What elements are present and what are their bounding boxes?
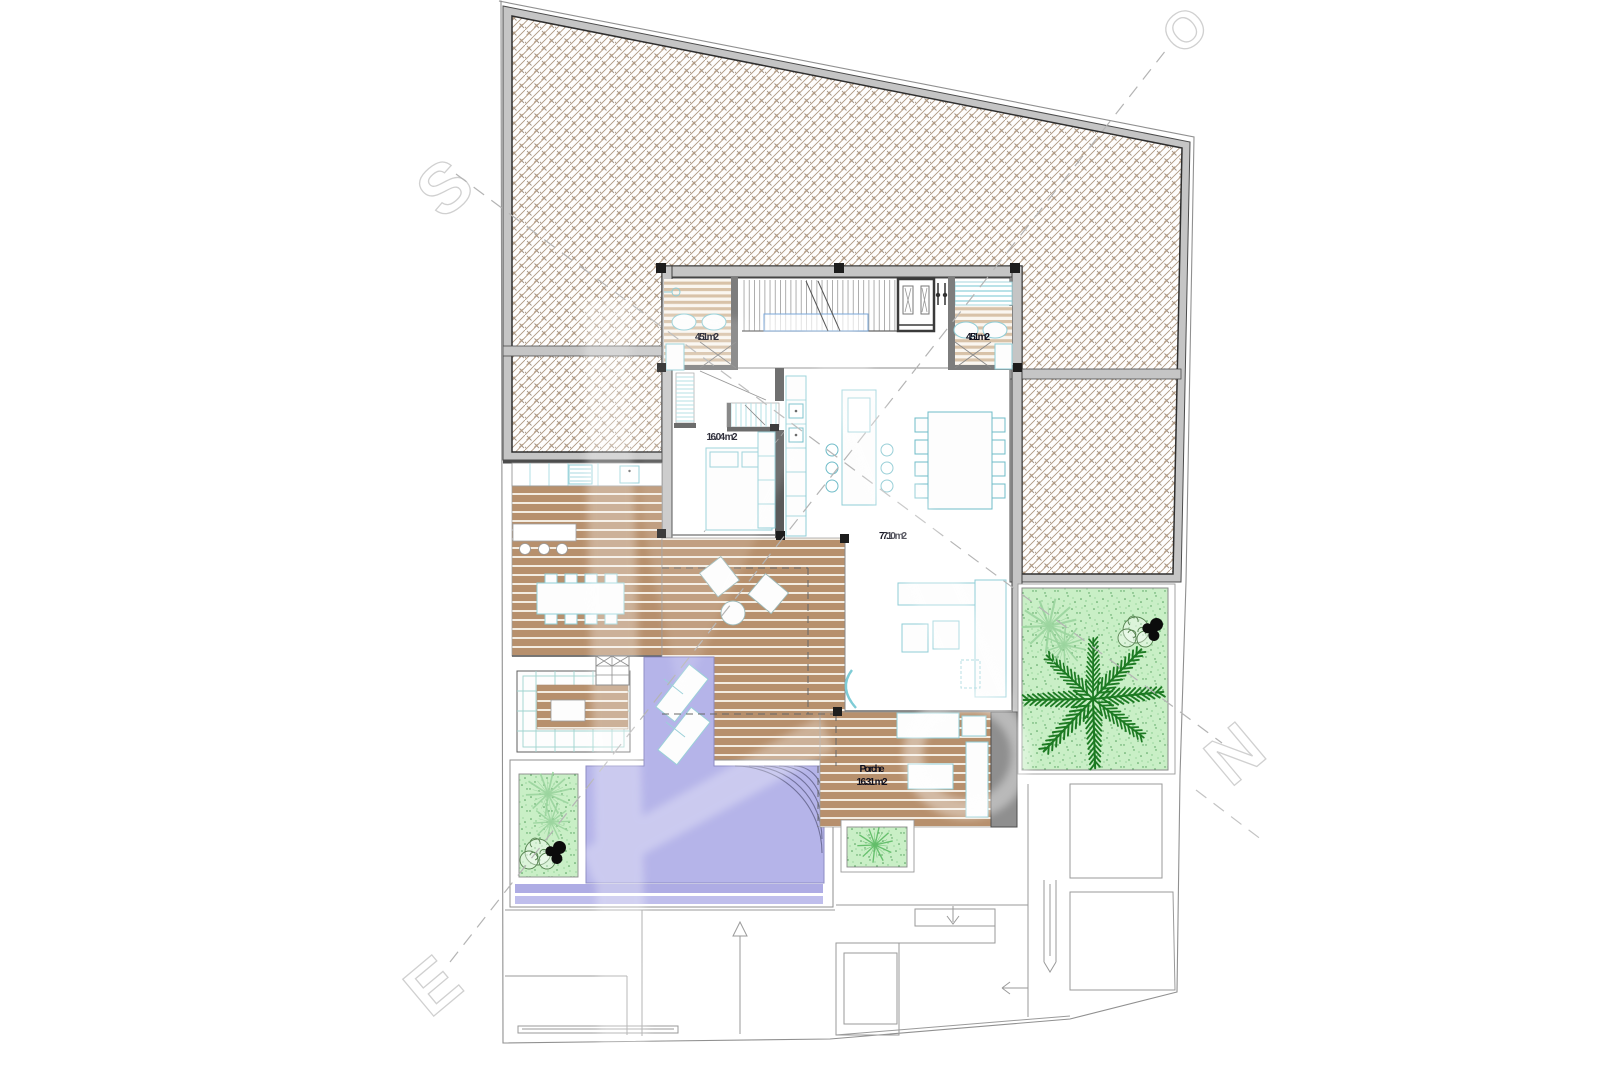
svg-text:4.51 m2: 4.51 m2 — [966, 332, 990, 343]
svg-text:16.31 m2: 16.31 m2 — [857, 777, 888, 788]
svg-text:Porche: Porche — [860, 764, 885, 775]
